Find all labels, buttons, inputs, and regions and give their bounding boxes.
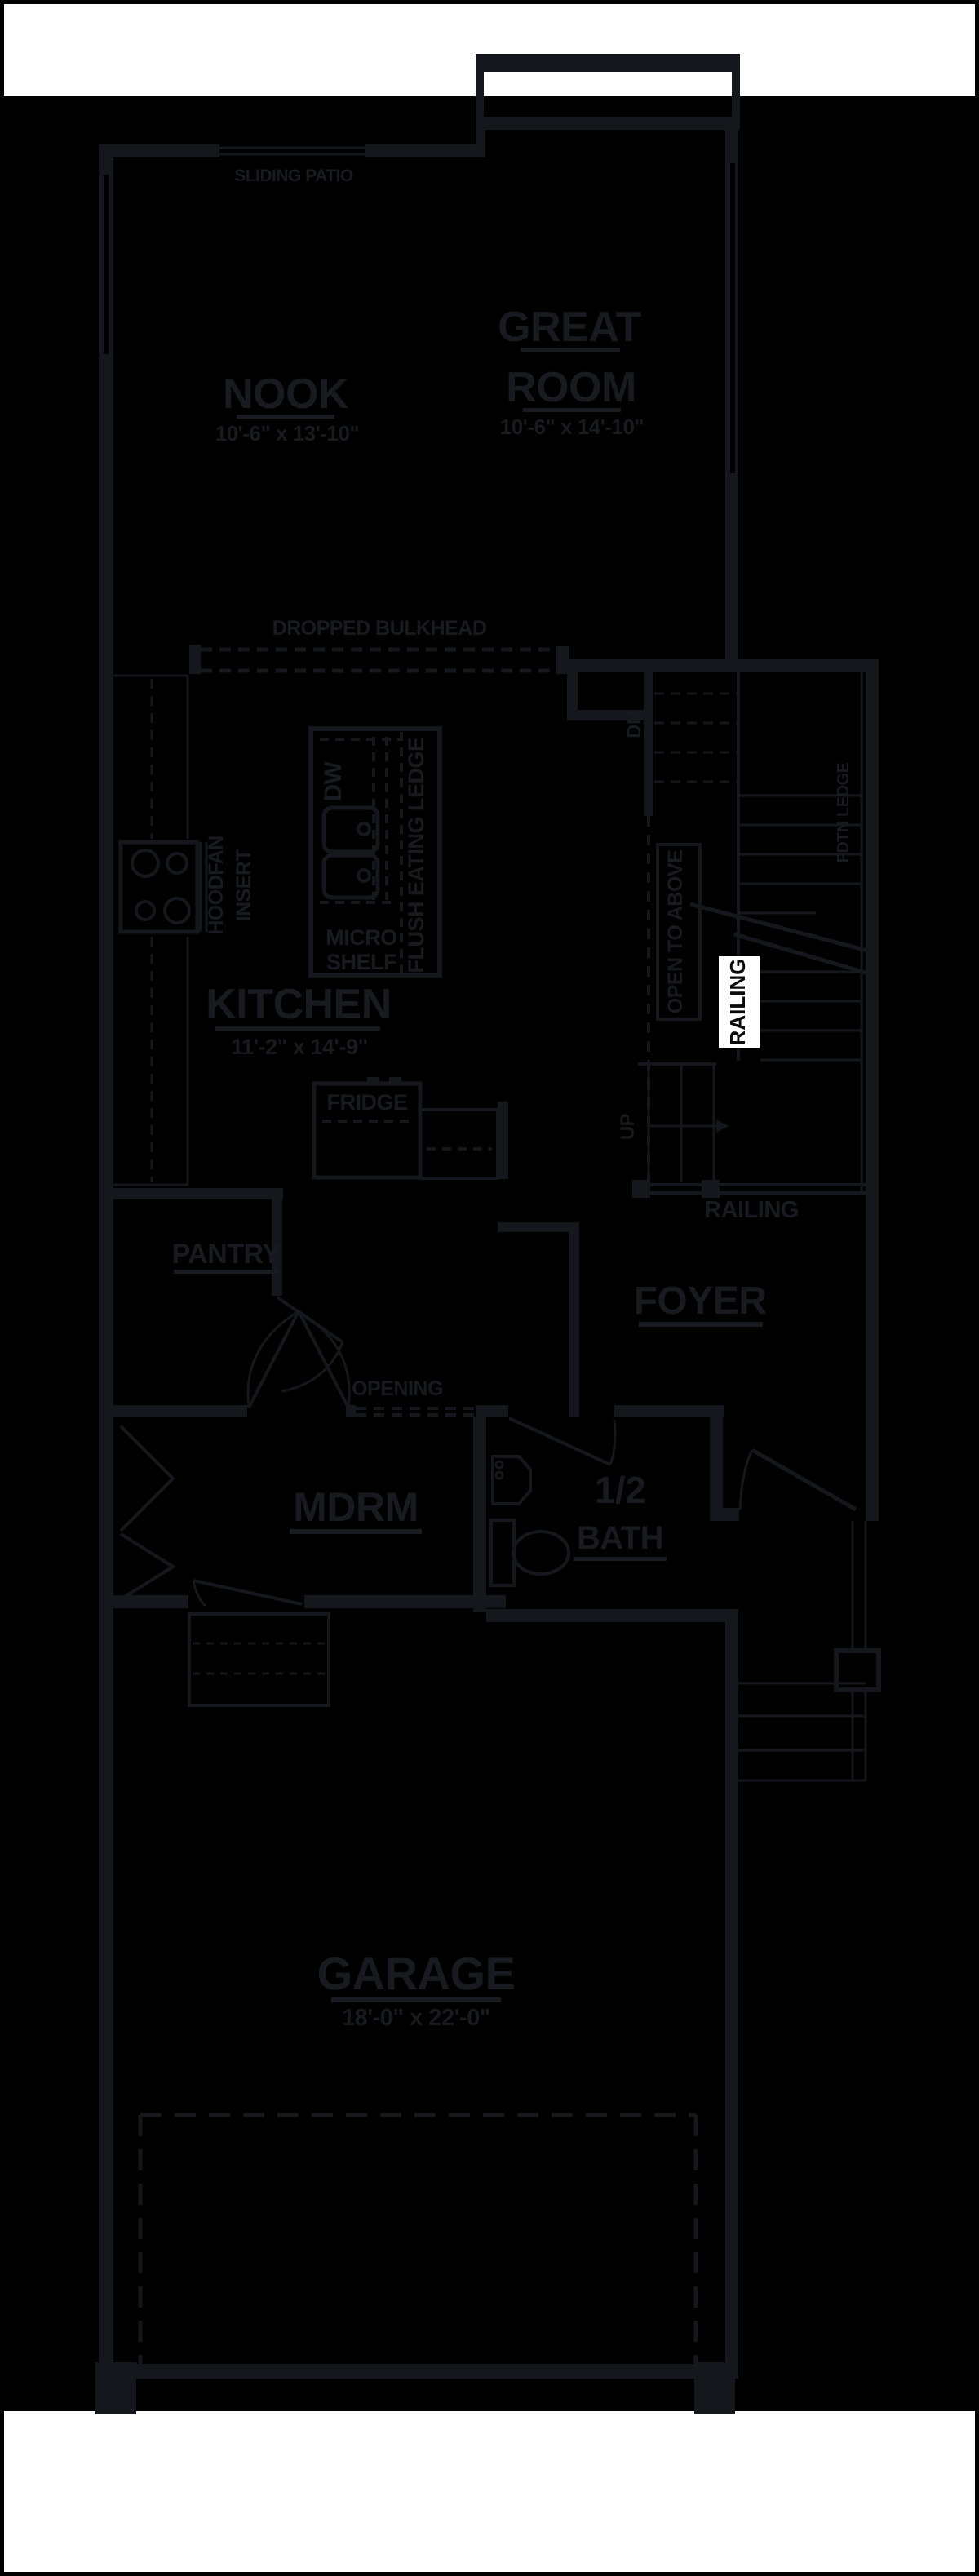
stairs-dn-label: DN: [623, 711, 645, 738]
mudroom-room-label: MDRM: [293, 1484, 419, 1530]
micro-shelf-label-line1: MICRO: [326, 925, 397, 950]
mudroom-underline: [290, 1529, 422, 1534]
micro-shelf-label-line2: SHELF: [326, 950, 396, 974]
open-to-above-label: OPEN TO ABOVE: [664, 850, 687, 1013]
garage-dims: 18'-0" x 22'-0": [342, 2005, 490, 2031]
floor-plan-page: SLIDING PATIO NOOK 10'-6" x 13'-10" GREA…: [0, 0, 979, 2576]
flush-eating-ledge-label: FLUSH EATING LEDGE: [404, 737, 428, 973]
nook-dims: 10'-6" x 13'-10": [215, 421, 359, 446]
great-room-underline2: [523, 408, 621, 412]
fridge-label: FRIDGE: [326, 1090, 407, 1115]
pantry-underline: [174, 1270, 278, 1274]
dropped-bulkhead-label: DROPPED BULKHEAD: [272, 617, 487, 640]
garage-underline: [331, 1997, 501, 2002]
railing-foyer-label: RAILING: [704, 1197, 799, 1223]
plan-canvas: [0, 96, 979, 2411]
half-bath-label-line2: BATH: [577, 1520, 663, 1556]
foundation-ledge-label: FDTN LEDGE: [835, 762, 853, 862]
hoodfan-label-line2: INSERT: [233, 849, 255, 921]
great-room-label-line2: ROOM: [506, 364, 636, 411]
sliding-patio-label: SLIDING PATIO: [234, 166, 353, 185]
stairs-up-label: UP: [617, 1113, 639, 1140]
nook-room-label: NOOK: [223, 370, 349, 418]
kitchen-underline: [215, 1026, 380, 1031]
garage-room-label: GARAGE: [317, 1948, 516, 1999]
foyer-room-label: FOYER: [634, 1279, 767, 1323]
great-room-underline1: [521, 348, 620, 352]
kitchen-dims: 11'-2" x 14'-9": [231, 1035, 368, 1059]
hoodfan-label-line1: HOODFAN: [205, 836, 228, 935]
great-room-label-line1: GREAT: [498, 304, 641, 351]
floor-plan-image: SLIDING PATIO NOOK 10'-6" x 13'-10" GREA…: [0, 0, 979, 2576]
foyer-underline: [639, 1322, 763, 1327]
nook-underline: [237, 415, 334, 419]
kitchen-room-label: KITCHEN: [206, 981, 392, 1028]
great-room-dims: 10'-6" x 14'-10": [500, 415, 644, 439]
half-bath-underline: [574, 1557, 667, 1561]
half-bath-label-line1: 1/2: [595, 1469, 645, 1511]
railing-stairwell-label: RAILING: [725, 959, 750, 1046]
pantry-room-label: PANTRY: [172, 1239, 281, 1270]
opening-label: OPENING: [352, 1377, 443, 1400]
dishwasher-label: DW: [320, 760, 347, 801]
